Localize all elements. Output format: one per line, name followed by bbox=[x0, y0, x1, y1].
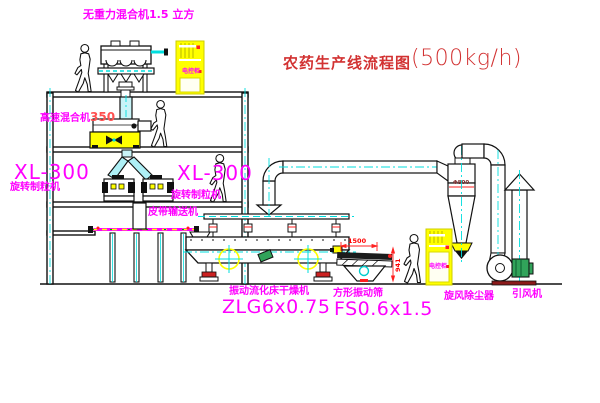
label-high-speed-mixer-num: 350 bbox=[90, 110, 115, 124]
label-granulator-left-name: 旋转制粒机 bbox=[10, 183, 60, 193]
title-text: 农药生产线流程图 bbox=[283, 46, 411, 73]
fluid-bed-dryer-drawing bbox=[183, 214, 356, 281]
label-dryer-model: ZLG6x0.75 bbox=[222, 298, 330, 317]
sieve-drawing bbox=[330, 242, 395, 282]
diagram-title: 农药生产线流程图 (500kg/h) bbox=[283, 46, 522, 73]
label-granulator-right-name: 旋转制粒机 bbox=[171, 191, 221, 201]
dimension-sieve-height: 941 bbox=[395, 258, 402, 272]
label-cabinet-top: 电控柜 bbox=[182, 69, 200, 75]
dimension-sieve-width: 1500 bbox=[348, 238, 366, 245]
exhaust-duct bbox=[257, 158, 460, 216]
gravity-mixer-drawing bbox=[98, 41, 168, 92]
label-cyclone: 旋风除尘器 bbox=[444, 292, 494, 302]
pesticide-line-flowchart: 农药生产线流程图 (500kg/h) 无重力混合机1.5 立方 高速混合机350… bbox=[0, 0, 600, 403]
label-high-speed-mixer: 高速混合机350 bbox=[40, 108, 115, 124]
person-figure bbox=[75, 44, 91, 92]
granulator-left-drawing bbox=[102, 175, 135, 201]
dimension-cyclone-diameter: Φ800 bbox=[453, 181, 469, 187]
roof-duct bbox=[120, 90, 132, 120]
conveyor-legs bbox=[110, 233, 186, 282]
person-figure bbox=[151, 100, 167, 147]
fan-drawing bbox=[487, 255, 536, 285]
label-cabinet-right: 电控柜 bbox=[429, 264, 447, 270]
label-granulator-left-model: XL-300 bbox=[14, 162, 90, 182]
label-granulator-right-model: XL-300 bbox=[177, 163, 253, 183]
person-figure bbox=[404, 235, 421, 284]
title-capacity: (500kg/h) bbox=[411, 46, 522, 71]
label-gravity-mixer: 无重力混合机1.5 立方 bbox=[83, 9, 194, 20]
label-high-speed-mixer-name: 高速混合机 bbox=[40, 113, 90, 124]
label-sieve-model: FS0.6x1.5 bbox=[334, 300, 433, 319]
granulator-right-drawing bbox=[141, 175, 174, 201]
label-fan: 引风机 bbox=[512, 290, 542, 300]
control-cabinet-right bbox=[426, 229, 452, 285]
label-belt-conveyor: 皮带输送机 bbox=[148, 208, 198, 218]
granulator-discharge-duct bbox=[133, 203, 146, 229]
